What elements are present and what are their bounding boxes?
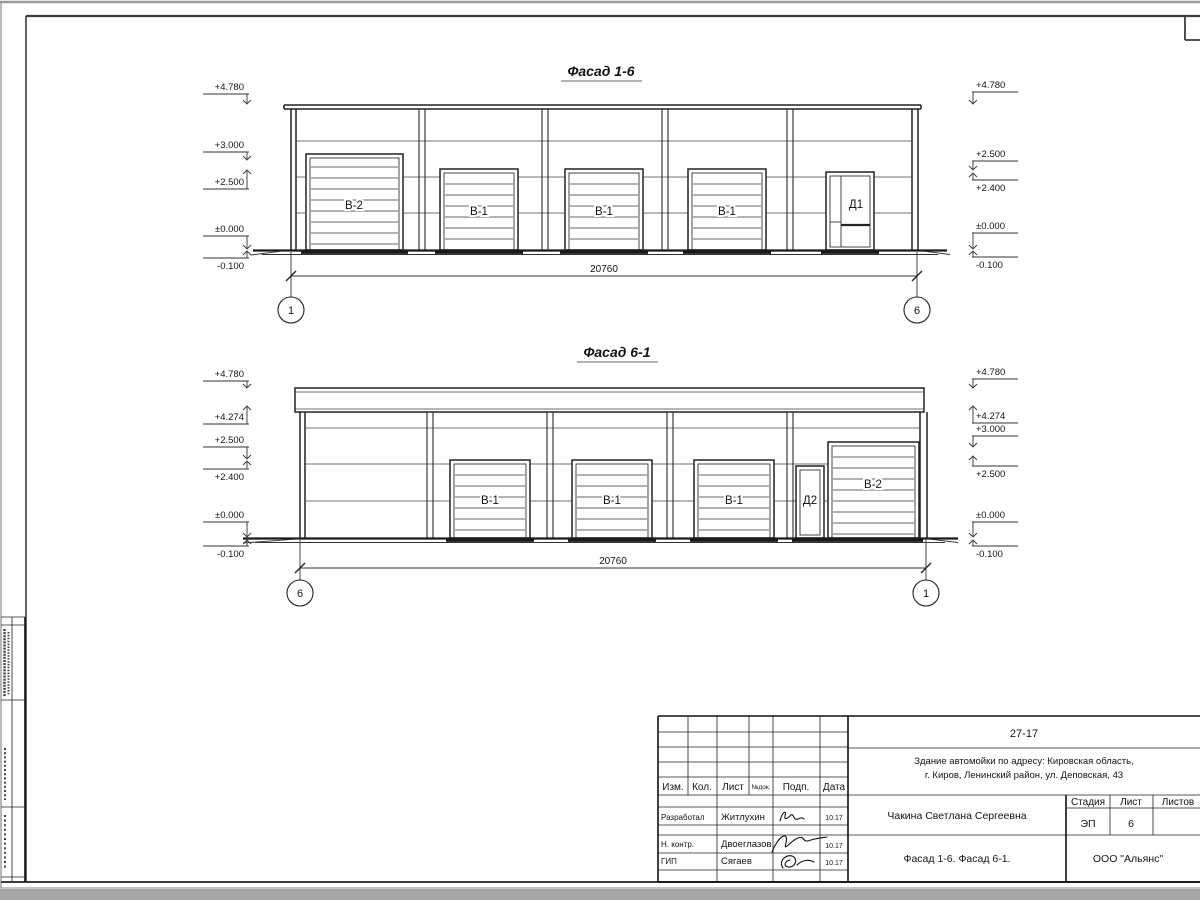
signer-name: Сягаев	[721, 856, 752, 867]
elevation-arrow	[969, 436, 977, 447]
door-label: Д1	[849, 199, 863, 211]
elevation-arrow	[243, 152, 251, 160]
gate-label: В-1	[470, 206, 488, 218]
elevation-mark: +3.000	[969, 424, 1018, 447]
parapet	[284, 105, 921, 109]
elevation-value: -0.100	[217, 261, 244, 272]
elevation-mark: -0.100	[969, 251, 1018, 271]
elevation-value: +4.274	[215, 412, 244, 423]
gate-b1-3: В-1	[694, 460, 774, 538]
elevation-arrow	[969, 456, 977, 466]
elevation-mark: +2.500	[203, 435, 251, 459]
elevation-arrow	[969, 251, 977, 257]
elevation-arrow	[969, 233, 977, 249]
signature-scribble	[780, 812, 804, 821]
elevation-mark: +2.500	[969, 149, 1018, 170]
elevation-value: +2.400	[976, 183, 1005, 194]
elevation-arrow	[243, 170, 251, 189]
total-sheets-header: Листов	[1162, 797, 1195, 808]
gate-b1-3: В-1	[688, 169, 766, 250]
elevation-value: ±0.000	[215, 224, 244, 235]
elevation-arrow	[243, 381, 251, 388]
signer-date: 10.17	[825, 843, 843, 850]
elevation-mark: -0.100	[203, 251, 251, 272]
signer-row-gip: ГИП Сягаев 10.17	[661, 856, 843, 868]
facade-bottom-ground	[243, 539, 958, 544]
signature-scribble	[772, 836, 827, 852]
elevation-value: -0.100	[976, 260, 1003, 271]
elevation-value: +2.400	[215, 472, 244, 483]
drawing-title: Фасад 1-6. Фасад 6-1.	[903, 853, 1010, 865]
elevation-mark: +4.780	[969, 80, 1018, 104]
gate-label: В-1	[718, 206, 736, 218]
gate-b1-2: В-1	[565, 169, 643, 250]
facade-bottom-dimension: 20760 6 1	[287, 540, 939, 606]
elevation-mark: -0.100	[203, 540, 251, 560]
gate-b1-1: В-1	[450, 460, 530, 538]
elevation-mark: +4.780	[203, 82, 251, 104]
facade-6-1: Фасад 6-1 В-1 В-1 В-1	[243, 344, 958, 606]
gate-label: В-1	[481, 495, 499, 507]
elevation-arrow	[969, 379, 977, 388]
axis-number-left: 1	[288, 305, 294, 317]
facade-top-ground	[251, 251, 950, 256]
elevation-arrow	[243, 540, 251, 546]
door-d2: Д2	[796, 466, 824, 538]
elevation-value: +2.500	[215, 177, 244, 188]
axis-number-left: 6	[297, 588, 303, 600]
elevation-mark: +2.400	[203, 461, 251, 483]
company-name: ООО "Альянс"	[1093, 853, 1163, 865]
gate-b2: В-2	[306, 154, 403, 250]
col-ndok: №док.	[751, 784, 770, 791]
elevation-mark: ±0.000	[969, 221, 1018, 249]
elevation-value: +4.780	[215, 82, 244, 93]
sheet-number-value: 6	[1128, 818, 1134, 830]
parapet	[295, 388, 924, 412]
elevation-mark: +4.780	[969, 367, 1018, 388]
gate-label: В-1	[595, 206, 613, 218]
elevation-value: +4.780	[215, 369, 244, 380]
elevation-value: ±0.000	[976, 221, 1005, 232]
elevation-value: +2.500	[976, 149, 1005, 160]
object-address-line2: г. Киров, Ленинский район, ул. Деповская…	[925, 770, 1123, 781]
elevation-arrow	[243, 251, 251, 258]
gate-b2: В-2	[828, 442, 919, 538]
axis-number-right: 1	[923, 588, 929, 600]
elevation-arrow	[969, 92, 977, 104]
gate-label: В-2	[345, 200, 363, 212]
facade-1-6: Фасад 1-6 В-2 В-1 В-1	[251, 63, 950, 323]
signer-role: ГИП	[661, 857, 677, 866]
elevation-mark: +3.000	[203, 140, 251, 160]
elevation-mark: +2.400	[969, 173, 1018, 194]
col-data: Дата	[823, 782, 846, 793]
gate-label: В-1	[725, 495, 743, 507]
elevation-mark: ±0.000	[969, 510, 1018, 537]
signer-name: Двоеглазов	[721, 839, 772, 850]
left-stamp-strip	[1, 617, 25, 882]
elevation-mark: ±0.000	[203, 224, 251, 249]
elevation-value: +3.000	[215, 140, 244, 151]
elevation-arrow	[969, 173, 977, 180]
col-kol: Кол.	[692, 782, 712, 793]
elevation-arrow	[243, 406, 251, 424]
elevation-arrow	[243, 94, 251, 104]
paper-bottom-band	[0, 889, 1200, 900]
elevation-arrow	[969, 540, 977, 546]
stage-value: ЭП	[1080, 818, 1095, 830]
dimension-value: 20760	[590, 264, 618, 275]
signer-role: Н. контр.	[661, 840, 694, 849]
facade-top-title: Фасад 1-6	[567, 63, 634, 79]
door-frame	[826, 172, 874, 250]
col-izm: Изм.	[662, 782, 683, 793]
axis-number-right: 6	[914, 305, 920, 317]
gate-label: В-2	[864, 479, 882, 491]
format-corner-box	[1185, 16, 1200, 40]
elevation-value: -0.100	[217, 549, 244, 560]
elevation-value: ±0.000	[976, 510, 1005, 521]
elevation-mark: +4.274	[969, 406, 1018, 423]
elevation-mark: +4.780	[203, 369, 251, 388]
elevation-arrow	[243, 447, 251, 459]
stage-header: Стадия	[1071, 797, 1105, 808]
door-label: Д2	[803, 495, 817, 507]
elevation-value: ±0.000	[215, 510, 244, 521]
elevation-value: +2.500	[215, 435, 244, 446]
elevation-value: +3.000	[976, 424, 1005, 435]
elevation-mark: -0.100	[969, 540, 1018, 560]
door-d1: Д1	[826, 172, 874, 250]
signer-row-ncontrol: Н. контр. Двоеглазов 10.17	[661, 836, 843, 852]
elevation-value: -0.100	[976, 549, 1003, 560]
customer-name: Чакина Светлана Сергеевна	[887, 810, 1026, 822]
dimension-value: 20760	[599, 556, 627, 567]
elevation-value: +4.780	[976, 80, 1005, 91]
signature-scribble	[781, 856, 814, 868]
elevation-arrow	[243, 461, 251, 469]
gate-b1-1: В-1	[440, 169, 518, 250]
elevation-arrow	[969, 161, 977, 170]
revision-header-row: Изм. Кол. Лист №док. Подп. Дата	[662, 782, 845, 793]
signer-row-developer: Разработал Житлухин 10.17	[661, 812, 843, 823]
col-list: Лист	[722, 782, 744, 793]
gate-b1-2: В-1	[572, 460, 652, 538]
drawing-sheet: Фасад 1-6 В-2 В-1 В-1	[0, 0, 1200, 900]
signer-date: 10.17	[825, 860, 843, 867]
signer-name: Житлухин	[721, 812, 765, 823]
elevation-mark: +2.500	[969, 456, 1018, 480]
elevation-mark: +4.274	[203, 406, 251, 424]
title-block: Изм. Кол. Лист №док. Подп. Дата Разработ…	[658, 716, 1200, 882]
col-podp: Подп.	[783, 782, 810, 793]
elevation-mark: +2.500	[203, 170, 251, 189]
signer-date: 10.17	[825, 815, 843, 822]
facade-top-dimension: 20760 1 6	[278, 252, 930, 323]
elevation-arrow	[243, 236, 251, 249]
elevation-value: +2.500	[976, 469, 1005, 480]
elevation-arrow	[243, 522, 251, 537]
gate-label: В-1	[603, 495, 621, 507]
elevation-value: +4.780	[976, 367, 1005, 378]
parapet-inner-lines	[295, 392, 924, 409]
doc-number: 27-17	[1010, 728, 1038, 740]
elevation-arrow	[969, 522, 977, 537]
sheet-header: Лист	[1120, 797, 1142, 808]
facade-bottom-title: Фасад 6-1	[583, 344, 650, 360]
elevation-value: +4.274	[976, 411, 1005, 422]
signer-role: Разработал	[661, 813, 705, 822]
object-address-line1: Здание автомойки по адресу: Кировская об…	[914, 756, 1134, 767]
elevation-mark: ±0.000	[203, 510, 251, 537]
